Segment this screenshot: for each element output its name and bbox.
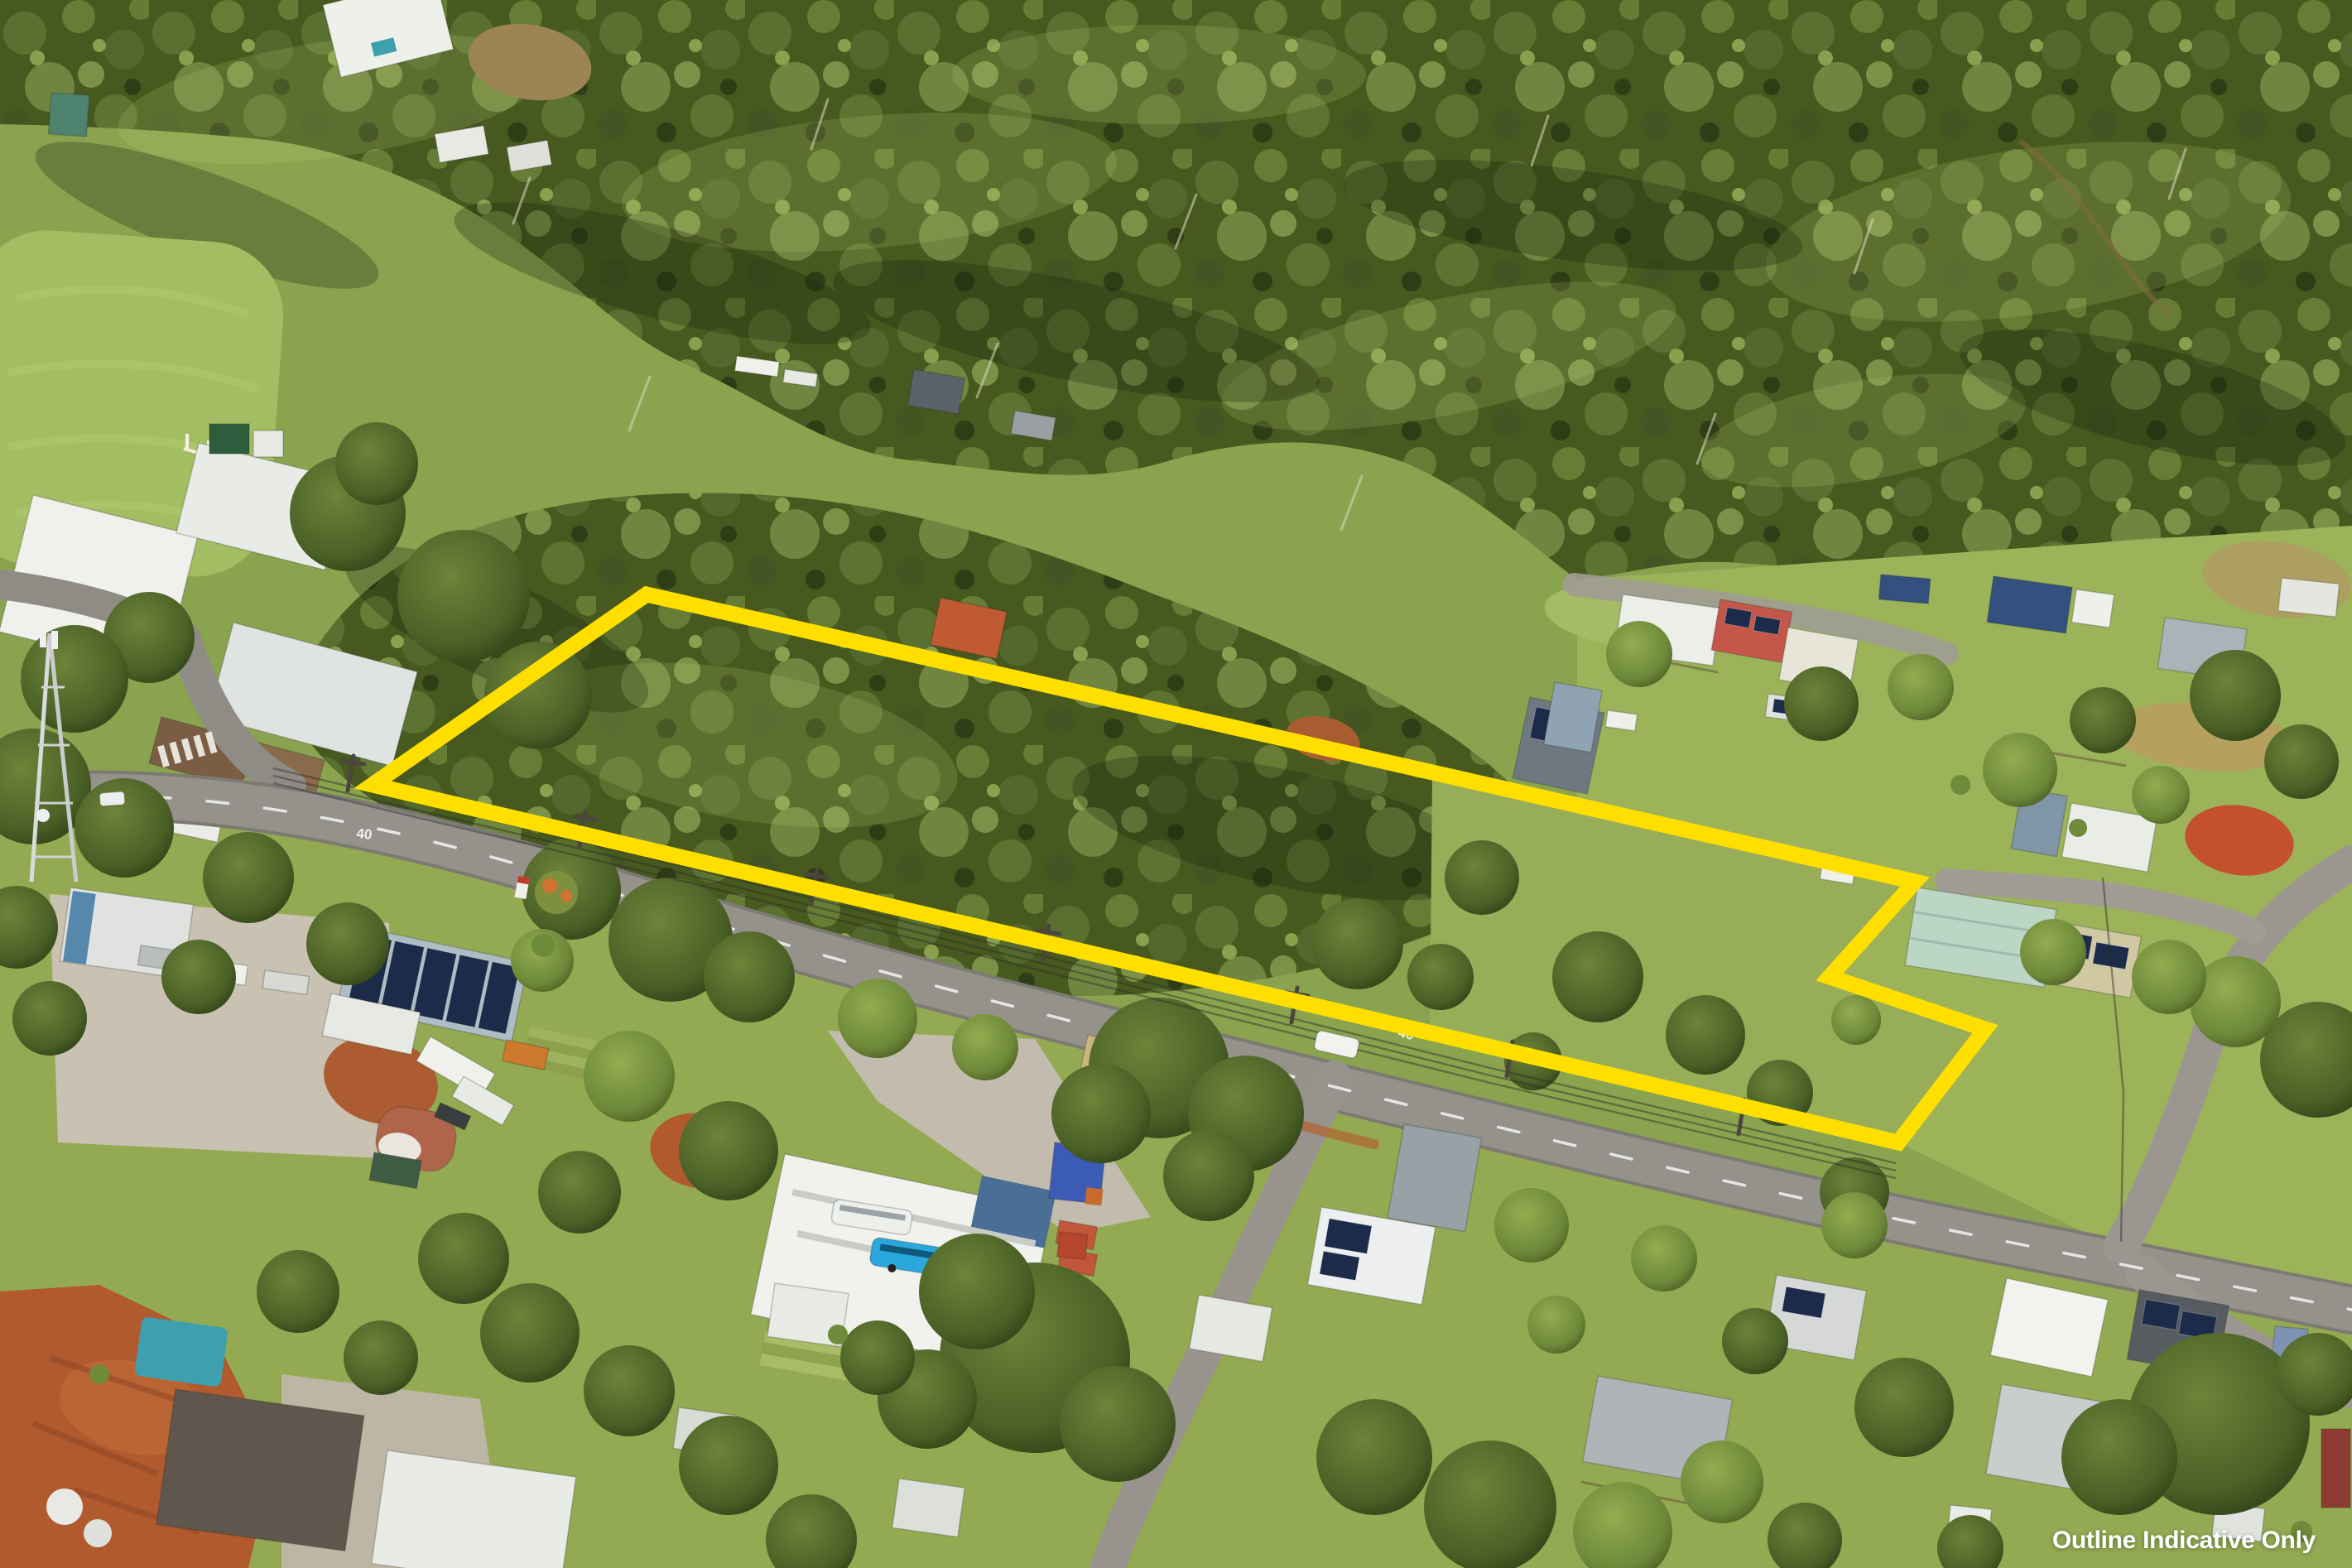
house-bluegrey [1544, 682, 1602, 753]
blue-tarp-pool [134, 1316, 228, 1388]
green-shed [209, 424, 249, 454]
shed-red [1057, 1232, 1088, 1259]
red-barn [2321, 1429, 2350, 1508]
outline-disclaimer-text: Outline Indicative Only [2052, 1527, 2316, 1555]
teal-roof-shed [49, 93, 89, 137]
house-grey-hip [1388, 1124, 1482, 1232]
antenna-panel [51, 631, 58, 649]
antenna-panel [40, 629, 46, 647]
aerial-photo: 40 40 [0, 0, 2352, 1568]
caravan-white [1605, 710, 1637, 731]
house-white [892, 1479, 965, 1537]
house-white [2278, 578, 2340, 617]
poinciana-tree [535, 871, 578, 914]
aerial-photo-canvas: 40 40 [0, 0, 2352, 1568]
white-tank [46, 1489, 83, 1525]
house-navy-roof [1878, 575, 1930, 604]
carport-white [2071, 589, 2114, 628]
road-speed-marking: 40 [356, 825, 373, 843]
microwave-dish [36, 809, 50, 822]
white-tank [84, 1519, 112, 1547]
white-shed [253, 430, 283, 457]
white-minibus [99, 791, 125, 806]
dark-shed [156, 1389, 364, 1551]
